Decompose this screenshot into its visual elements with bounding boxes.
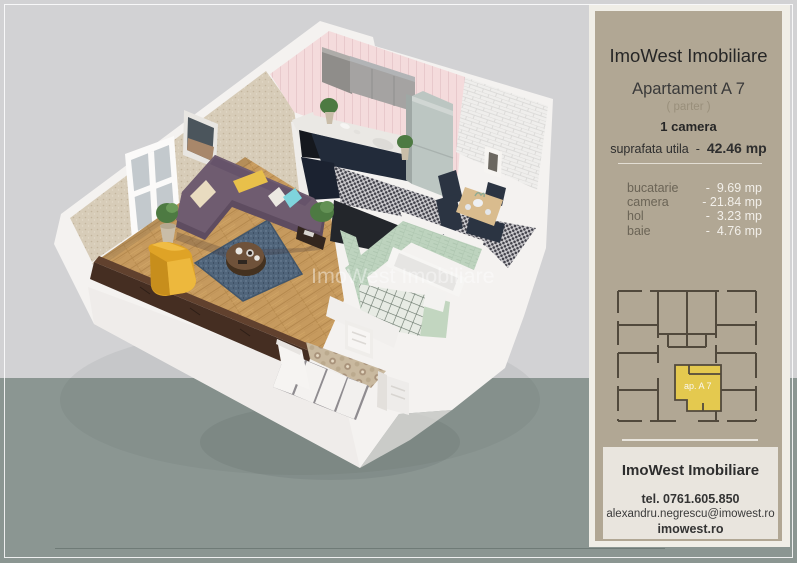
svg-text:ImoWest Imobiliare: ImoWest Imobiliare [311, 264, 495, 288]
svg-text:ap. A 7: ap. A 7 [684, 381, 712, 391]
